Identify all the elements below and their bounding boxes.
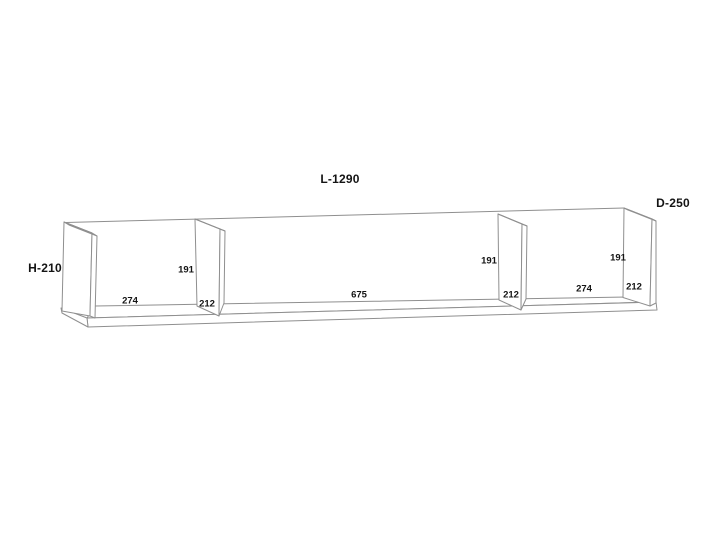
divider-1-edge	[219, 229, 225, 316]
dim-label-section2-width: 675	[351, 290, 367, 301]
shelf-line-drawing	[0, 0, 718, 539]
dim-label-section2-depth: 212	[503, 290, 519, 301]
dim-label-section1-height: 191	[178, 265, 194, 276]
dim-label-section1-depth: 212	[199, 299, 215, 310]
dim-label-overall-height: H-210	[28, 261, 62, 275]
left-panel-face	[62, 222, 92, 316]
dim-label-section3-height: 191	[610, 253, 626, 264]
dim-label-overall-depth: D-250	[656, 196, 690, 210]
divider-2-edge	[521, 224, 527, 310]
back-top-edge-line	[66, 208, 624, 223]
dim-label-section3-width: 274	[576, 284, 592, 295]
dim-label-section2-height: 191	[481, 256, 497, 267]
dim-label-section3-depth: 212	[626, 282, 642, 293]
dim-label-overall-length: L-1290	[320, 172, 359, 186]
dim-label-section1-width: 274	[122, 296, 138, 307]
shelf-dimension-diagram: L-1290 D-250 H-210 274 191 212 675 191 2…	[0, 0, 718, 539]
